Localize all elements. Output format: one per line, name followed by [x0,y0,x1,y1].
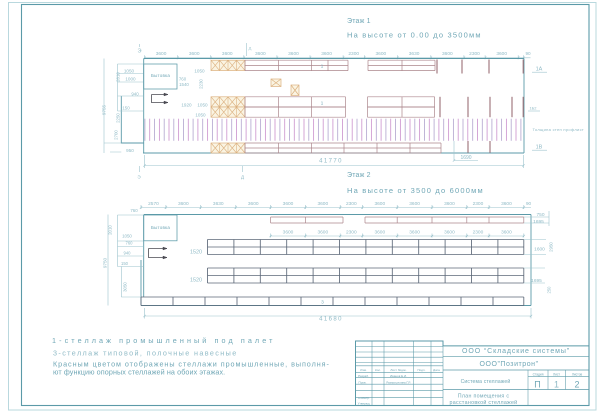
svg-text:3600: 3600 [156,51,167,57]
svg-text:Изм.: Изм. [360,368,367,372]
svg-text:1920: 1920 [181,103,192,108]
svg-text:1690: 1690 [460,155,471,161]
svg-text:3600: 3600 [501,230,512,236]
svg-text:1Б2: 1Б2 [529,106,537,111]
svg-text:1520: 1520 [190,278,202,284]
svg-text:Дата: Дата [433,368,440,372]
svg-text:1050: 1050 [197,103,208,108]
svg-text:3600: 3600 [444,230,455,236]
svg-text:3600: 3600 [255,51,266,57]
svg-text:Лист: Лист [553,372,560,376]
svg-text:150: 150 [122,106,130,111]
svg-text:3600: 3600 [222,51,233,57]
svg-text:3-стеллаж типовой, полочные на: 3-стеллаж типовой, полочные навесные [53,349,238,358]
svg-text:3600: 3600 [321,51,332,57]
svg-text:3600: 3600 [409,230,420,236]
svg-text:3600: 3600 [178,201,189,207]
svg-text:Лист №док.: Лист №док. [390,368,406,372]
svg-text:Кол.: Кол. [375,368,381,372]
svg-text:1600: 1600 [534,247,545,253]
svg-text:90: 90 [525,51,531,56]
svg-text:750: 750 [536,212,544,218]
svg-text:Этаж 1: Этаж 1 [347,18,371,25]
svg-text:760: 760 [130,208,138,213]
svg-text:940: 940 [124,251,132,256]
svg-text:ООО”Позитрон”: ООО”Позитрон” [480,361,539,368]
svg-text:ООО “Складские системы”: ООО “Складские системы” [462,348,570,355]
svg-text:41680: 41680 [319,317,343,323]
svg-text:Утвержд.: Утвержд. [358,401,371,405]
svg-text:3600: 3600 [409,201,420,207]
svg-text:3630: 3630 [409,51,420,57]
svg-text:760: 760 [126,241,134,246]
svg-text:1А: 1А [536,67,543,73]
svg-text:1000: 1000 [125,77,136,82]
svg-text:Подп.: Подп. [418,368,426,372]
svg-text:1050: 1050 [124,68,135,73]
svg-text:Э: Э [138,49,142,55]
svg-text:150: 150 [121,261,129,266]
svg-text:Разраб.: Разраб. [358,374,369,378]
svg-text:950: 950 [126,148,134,153]
svg-text:Иванов Е.И.: Иванов Е.И. [390,374,407,378]
svg-text:Пров.: Пров. [359,381,367,385]
svg-text:2300: 2300 [346,230,357,236]
svg-text:3600: 3600 [189,51,200,57]
svg-text:3600: 3600 [442,51,453,57]
svg-text:760: 760 [179,76,187,81]
svg-text:Толщина стен профлист: Толщина стен профлист [533,127,585,132]
svg-text:3600: 3600 [283,230,294,236]
svg-text:1540: 1540 [179,82,189,87]
svg-text:Н.контр.: Н.контр. [358,396,370,400]
svg-text:На высоте от 0.00 до 3500мм: На высоте от 0.00 до 3500мм [347,31,482,40]
svg-text:Этаж 2: Этаж 2 [347,172,371,179]
svg-text:3600: 3600 [317,230,328,236]
svg-text:П: П [534,380,540,390]
svg-text:Рахматуллина Г.Р.: Рахматуллина Г.Р. [386,381,411,385]
svg-text:1: 1 [554,380,559,390]
svg-text:2300: 2300 [346,201,357,207]
svg-text:3600: 3600 [374,201,385,207]
svg-text:3600: 3600 [496,51,507,57]
svg-text:расстановкой стеллажей: расстановкой стеллажей [450,399,518,406]
svg-text:3630: 3630 [213,201,224,207]
svg-text:Бытовка: Бытовка [151,73,170,78]
svg-text:3600: 3600 [501,201,512,207]
svg-text:2300: 2300 [469,51,480,57]
svg-text:3600: 3600 [374,230,385,236]
svg-text:940: 940 [131,91,139,96]
svg-text:2300: 2300 [473,201,484,207]
svg-text:3600: 3600 [376,51,387,57]
svg-text:1050: 1050 [194,68,205,73]
svg-text:3050: 3050 [123,282,128,292]
svg-text:2010: 2010 [108,225,113,235]
svg-text:9750: 9750 [103,257,108,268]
svg-text:2300: 2300 [473,230,484,236]
svg-text:Листов: Листов [572,372,583,376]
svg-text:9755: 9755 [102,104,107,115]
svg-text:На высоте от 3500 до 6000мм: На высоте от 3500 до 6000мм [347,186,484,195]
svg-text:План помещения с: План помещения с [458,394,510,400]
svg-text:2700: 2700 [114,130,119,140]
svg-text:1050: 1050 [195,112,206,117]
svg-text:Бытовка: Бытовка [151,225,170,230]
svg-text:2570: 2570 [148,201,159,207]
svg-text:2810: 2810 [116,72,121,82]
svg-text:3600: 3600 [288,51,299,57]
svg-text:90: 90 [526,201,532,206]
svg-text:41770: 41770 [319,159,343,165]
svg-text:1695: 1695 [533,219,544,225]
svg-text:2300: 2300 [348,51,359,57]
svg-text:2950: 2950 [549,242,554,252]
svg-text:1520: 1520 [190,250,202,256]
svg-text:3600: 3600 [444,201,455,207]
svg-text:2: 2 [574,380,579,390]
svg-text:1В: 1В [536,145,543,151]
svg-text:250: 250 [547,286,552,294]
svg-text:Стадия: Стадия [533,372,544,376]
svg-text:2230: 2230 [199,79,204,89]
svg-text:ют функцию опорных стеллажей н: ют функцию опорных стеллажей на обоих эт… [53,368,225,377]
svg-text:2250: 2250 [116,113,121,123]
svg-text:1050: 1050 [122,234,132,239]
svg-text:3600: 3600 [248,201,259,207]
svg-text:Система стеллажей: Система стеллажей [461,378,511,385]
svg-text:3600: 3600 [317,201,328,207]
svg-text:1-стеллаж промышленный под пал: 1-стеллаж промышленный под палет [52,336,275,345]
svg-text:3600: 3600 [283,201,294,207]
svg-text:Д: Д [249,46,252,51]
